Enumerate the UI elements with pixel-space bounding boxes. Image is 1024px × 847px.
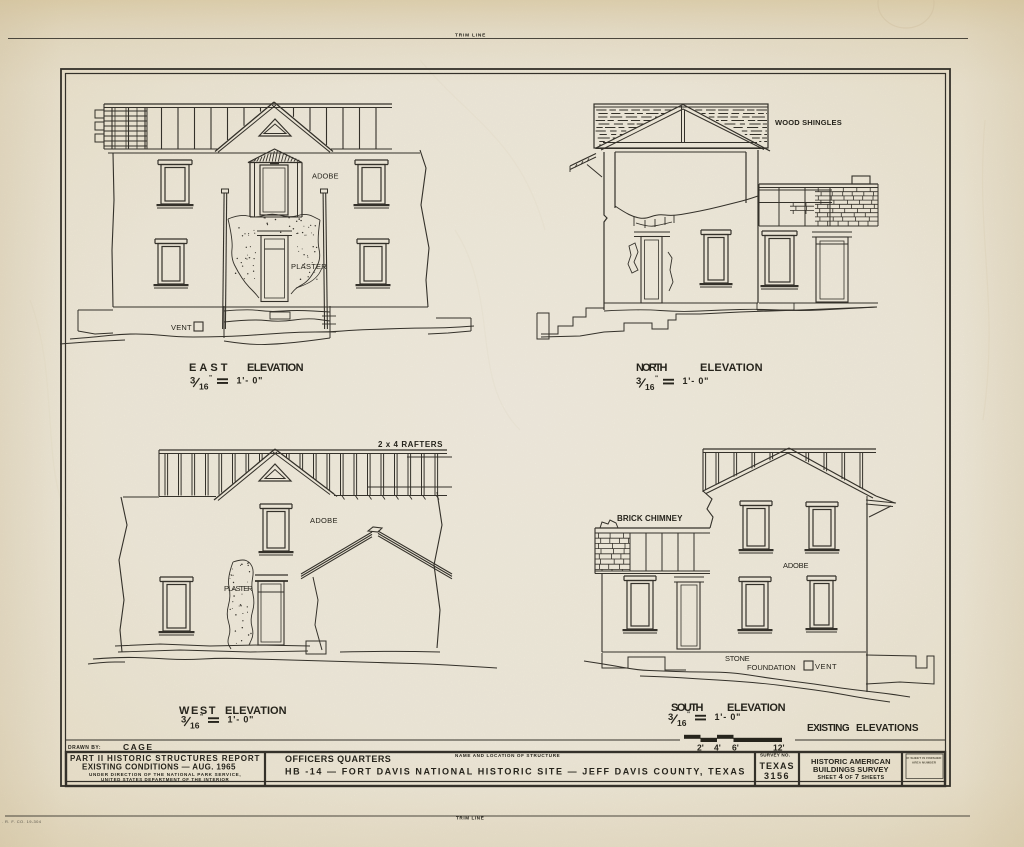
svg-text:. R. F. CO. 19-304: . R. F. CO. 19-304 [2, 819, 42, 824]
svg-text:ADOBE: ADOBE [312, 172, 339, 181]
svg-text:ADOBE: ADOBE [783, 561, 809, 570]
svg-text:TRIM LINE: TRIM LINE [456, 816, 484, 821]
svg-text:BRICK CHIMNEY: BRICK CHIMNEY [617, 514, 684, 523]
svg-text:16: 16 [190, 721, 200, 731]
svg-text:16: 16 [199, 382, 209, 392]
svg-text:IF SHEET IS FINISHED: IF SHEET IS FINISHED [906, 756, 942, 760]
svg-text:ELEVATION: ELEVATION [700, 362, 763, 374]
svg-text:BUILDINGS SURVEY: BUILDINGS SURVEY [813, 765, 889, 774]
svg-text:PLASTER: PLASTER [224, 584, 253, 593]
svg-text:1'- 0": 1'- 0" [715, 712, 742, 722]
svg-text:1'- 0": 1'- 0" [683, 376, 710, 386]
svg-text:DRAWN BY:: DRAWN BY: [68, 745, 101, 751]
svg-text:ELEVATION: ELEVATION [247, 362, 304, 374]
svg-text:": " [687, 711, 690, 718]
svg-text:": " [200, 714, 203, 721]
svg-text:1'- 0": 1'- 0" [237, 376, 264, 386]
svg-text:EAST: EAST [189, 362, 231, 374]
svg-text:UNITED STATES DEPARTMENT OF TH: UNITED STATES DEPARTMENT OF THE INTERIOR [101, 777, 230, 782]
svg-text:EXISTING: EXISTING [807, 723, 850, 734]
svg-text:": " [655, 375, 658, 382]
svg-text:SURVEY NO.: SURVEY NO. [760, 753, 790, 758]
svg-text:2 x 4 RAFTERS: 2 x 4 RAFTERS [378, 440, 444, 449]
svg-text:CAGE: CAGE [123, 742, 154, 752]
svg-text:NAME AND LOCATION OF STRUCTURE: NAME AND LOCATION OF STRUCTURE [455, 753, 560, 758]
svg-text:VENT: VENT [171, 323, 192, 332]
svg-text:ELEVATIONS: ELEVATIONS [856, 723, 919, 734]
svg-text:EXISTING CONDITIONS — AUG. 19: EXISTING CONDITIONS — AUG. 1965 [82, 763, 236, 772]
svg-text:1'- 0": 1'- 0" [228, 715, 255, 725]
svg-text:": " [209, 375, 212, 382]
svg-text:AREA NUMBER: AREA NUMBER [912, 761, 937, 765]
svg-text:16: 16 [645, 382, 655, 392]
svg-text:3156: 3156 [764, 771, 790, 781]
svg-text:FOUNDATION: FOUNDATION [747, 663, 796, 672]
svg-text:WOOD SHINGLES: WOOD SHINGLES [775, 118, 843, 127]
svg-text:STONE: STONE [725, 654, 750, 663]
svg-text:TRIM LINE: TRIM LINE [455, 33, 486, 39]
svg-text:PLASTER: PLASTER [291, 262, 327, 271]
svg-text:TEXAS: TEXAS [759, 761, 794, 771]
svg-text:HB -14 — FORT DAVIS NATION: HB -14 — FORT DAVIS NATIONAL HISTORIC SI… [285, 767, 745, 777]
svg-text:VENT: VENT [815, 662, 837, 671]
svg-text:ADOBE: ADOBE [310, 516, 338, 525]
svg-text:16: 16 [677, 718, 687, 728]
svg-text:OFFICERS QUARTERS: OFFICERS QUARTERS [285, 754, 392, 764]
svg-text:NORTH: NORTH [636, 362, 671, 374]
